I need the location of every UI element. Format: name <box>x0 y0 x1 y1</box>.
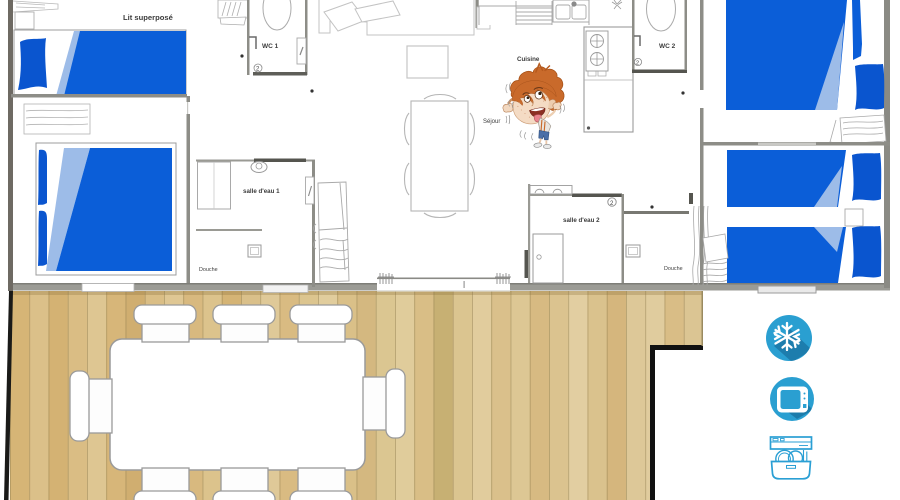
svg-text:Douche: Douche <box>199 267 218 273</box>
svg-text:salle d'eau 1: salle d'eau 1 <box>243 188 280 195</box>
svg-text:Douche: Douche <box>664 266 683 272</box>
svg-text:salle d'eau 2: salle d'eau 2 <box>563 217 600 224</box>
svg-text:Lit superposé: Lit superposé <box>123 13 173 22</box>
svg-text:Séjour: Séjour <box>483 119 500 125</box>
svg-text:2: 2 <box>636 61 639 67</box>
svg-text:Cuisine: Cuisine <box>517 56 540 63</box>
svg-text:WC 1: WC 1 <box>262 43 279 50</box>
svg-text:WC 2: WC 2 <box>659 43 676 50</box>
